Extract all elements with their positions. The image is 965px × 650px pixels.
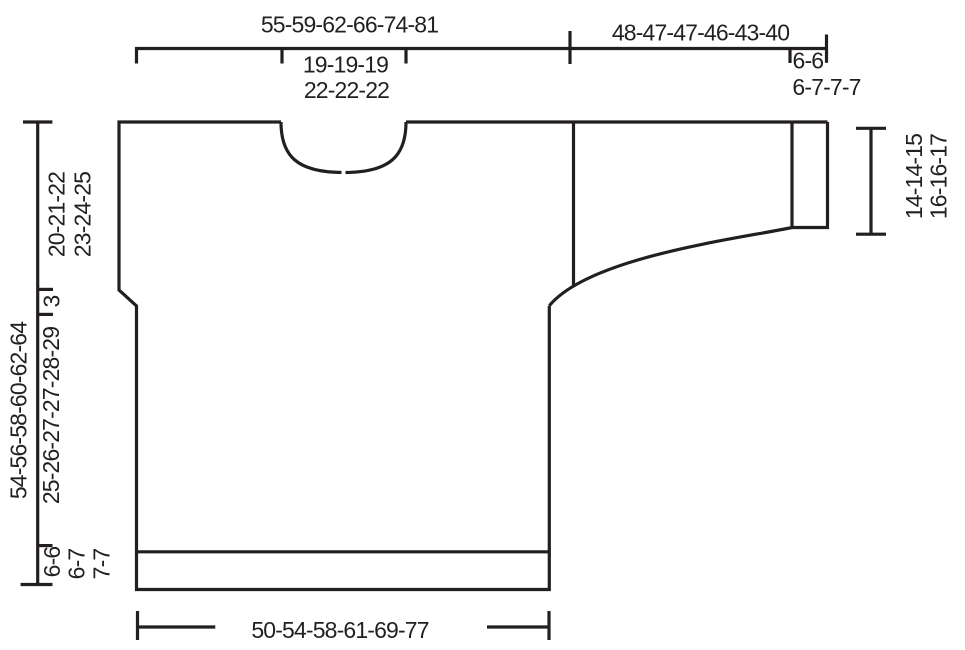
svg-text:20-21-22: 20-21-22 xyxy=(44,172,70,257)
svg-text:3: 3 xyxy=(39,295,65,307)
svg-text:25-26-27-27-28-29: 25-26-27-27-28-29 xyxy=(38,327,64,504)
svg-text:22-22-22: 22-22-22 xyxy=(304,77,389,103)
svg-text:6-6: 6-6 xyxy=(39,547,65,578)
svg-text:6-7: 6-7 xyxy=(64,549,90,580)
svg-text:6-6: 6-6 xyxy=(793,48,824,74)
svg-text:14-14-15: 14-14-15 xyxy=(901,134,927,219)
svg-text:19-19-19: 19-19-19 xyxy=(303,52,388,78)
svg-text:54-56-58-60-62-64: 54-56-58-60-62-64 xyxy=(6,321,32,499)
svg-text:16-16-17: 16-16-17 xyxy=(926,134,952,219)
svg-text:6-7-7-7: 6-7-7-7 xyxy=(792,74,860,100)
svg-text:50-54-58-61-69-77: 50-54-58-61-69-77 xyxy=(251,617,428,643)
svg-text:55-59-62-66-74-81: 55-59-62-66-74-81 xyxy=(261,11,438,37)
svg-text:48-47-47-46-43-40: 48-47-47-46-43-40 xyxy=(612,20,789,46)
svg-text:23-24-25: 23-24-25 xyxy=(70,172,96,257)
svg-text:7-7: 7-7 xyxy=(89,549,115,580)
